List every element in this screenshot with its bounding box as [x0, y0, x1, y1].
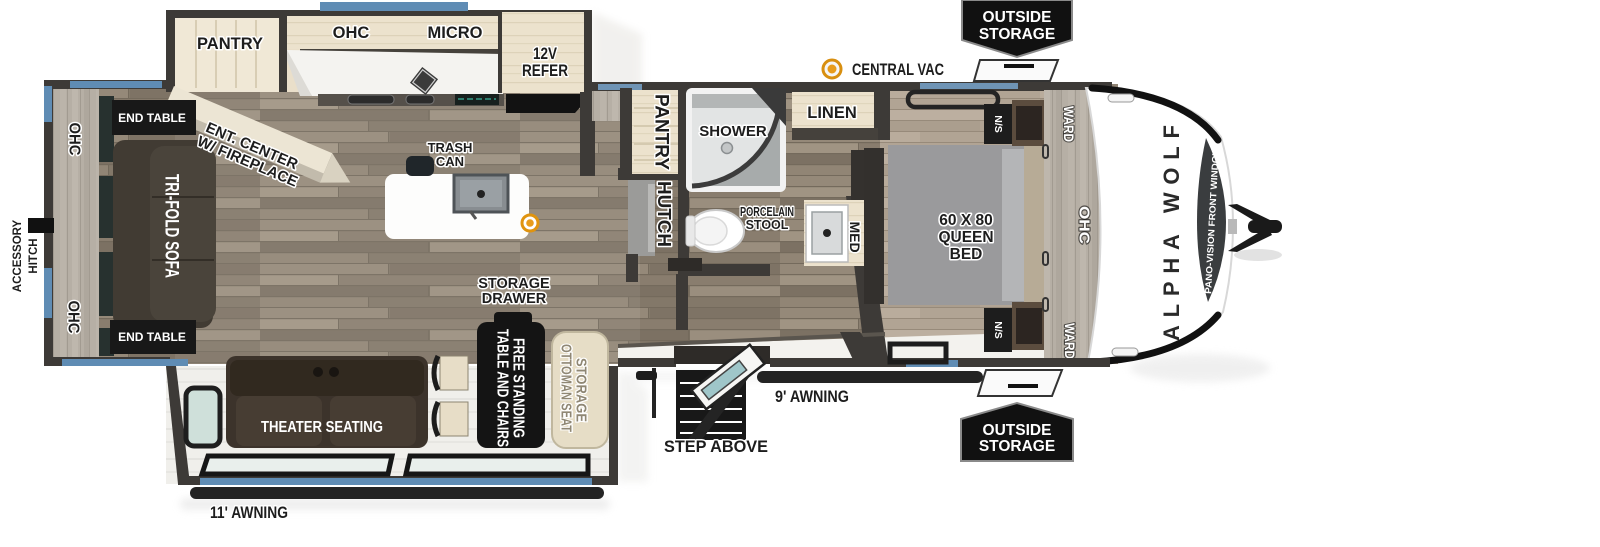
svg-text:STEP ABOVE: STEP ABOVE [664, 437, 768, 456]
svg-text:PANTRY: PANTRY [197, 35, 263, 53]
svg-text:OHC: OHC [1076, 206, 1093, 244]
svg-text:PANTRY: PANTRY [651, 94, 672, 170]
svg-text:60 X 80: 60 X 80 [939, 212, 992, 229]
svg-text:END TABLE: END TABLE [118, 330, 186, 344]
svg-text:THEATER SEATING: THEATER SEATING [261, 419, 383, 436]
svg-text:OHC: OHC [66, 123, 83, 156]
svg-text:STORAGE: STORAGE [979, 26, 1055, 43]
svg-text:REFER: REFER [522, 62, 568, 80]
svg-text:CAN: CAN [436, 154, 464, 169]
svg-text:OUTSIDE: OUTSIDE [983, 9, 1052, 26]
svg-text:OUTSIDE: OUTSIDE [983, 422, 1052, 439]
svg-text:STORAGE: STORAGE [478, 276, 550, 292]
svg-text:ALPHA WOLF: ALPHA WOLF [1159, 119, 1184, 341]
svg-text:STOOL: STOOL [746, 218, 789, 232]
svg-text:ACCESSORY: ACCESSORY [12, 219, 24, 292]
svg-text:TABLE AND CHAIRS: TABLE AND CHAIRS [494, 329, 511, 447]
svg-text:BED: BED [950, 246, 983, 263]
svg-text:STORAGE: STORAGE [979, 438, 1055, 455]
svg-text:OTTOMAN SEAT: OTTOMAN SEAT [558, 344, 575, 432]
svg-text:MED: MED [847, 221, 863, 252]
svg-text:LINEN: LINEN [807, 104, 857, 122]
svg-text:HUTCH: HUTCH [654, 181, 674, 247]
svg-text:9' AWNING: 9' AWNING [775, 387, 849, 406]
svg-text:TRASH: TRASH [428, 140, 473, 155]
svg-text:OHC: OHC [65, 301, 82, 334]
svg-text:WARD: WARD [1061, 106, 1077, 142]
svg-text:OHC: OHC [333, 24, 370, 42]
svg-text:END TABLE: END TABLE [118, 111, 186, 125]
svg-text:PORCELAIN: PORCELAIN [740, 205, 794, 219]
svg-text:CENTRAL VAC: CENTRAL VAC [852, 61, 944, 79]
svg-text:12V: 12V [533, 45, 557, 63]
svg-text:11' AWNING: 11' AWNING [210, 503, 288, 522]
svg-text:MICRO: MICRO [428, 24, 483, 42]
svg-text:QUEEN: QUEEN [938, 229, 993, 246]
svg-text:DRAWER: DRAWER [482, 291, 547, 307]
svg-text:N/S: N/S [992, 321, 1004, 339]
svg-text:WARD: WARD [1062, 323, 1078, 359]
svg-text:TRI-FOLD SOFA: TRI-FOLD SOFA [161, 174, 182, 278]
svg-text:N/S: N/S [992, 115, 1004, 133]
svg-text:FREE STANDING: FREE STANDING [510, 338, 527, 438]
svg-text:SHOWER: SHOWER [699, 123, 767, 140]
svg-text:HITCH: HITCH [28, 238, 40, 273]
